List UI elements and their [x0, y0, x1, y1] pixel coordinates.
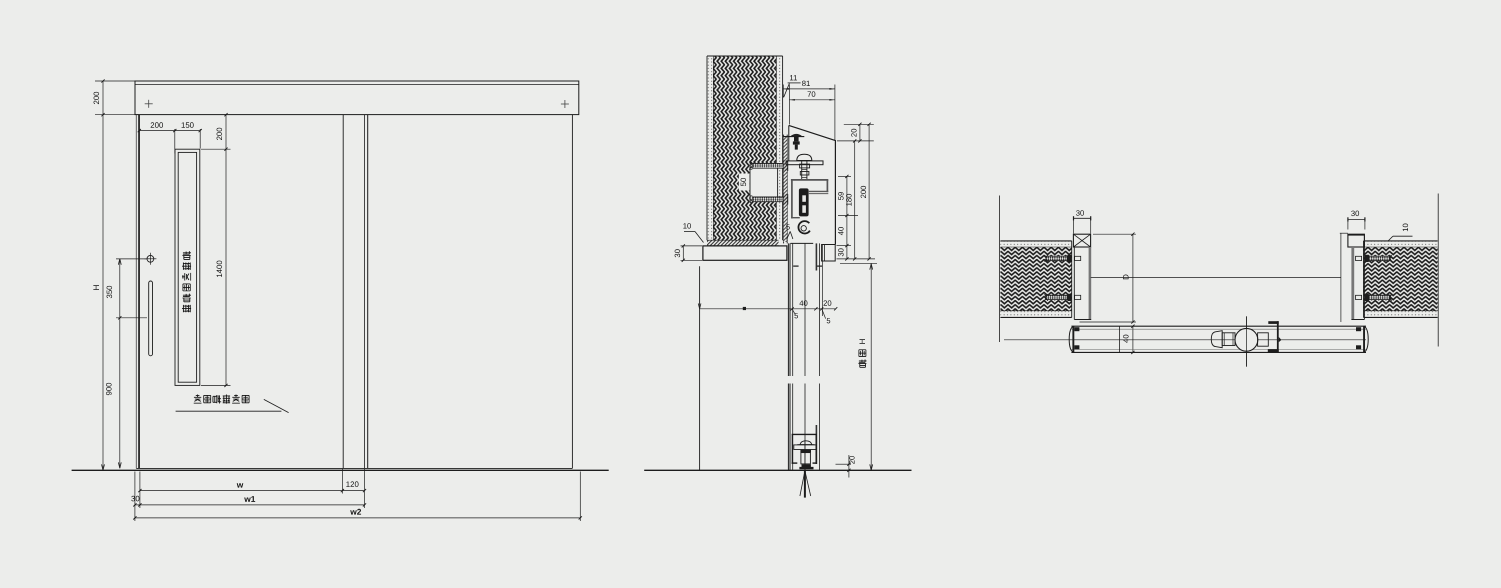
svg-text:180: 180 — [844, 194, 853, 207]
svg-text:w: w — [236, 480, 244, 490]
svg-text:D: D — [1122, 274, 1131, 280]
svg-text:5: 5 — [794, 311, 798, 320]
svg-text:10: 10 — [1401, 223, 1410, 232]
svg-text:H: H — [92, 284, 101, 290]
svg-text:H: H — [858, 338, 867, 344]
svg-text:200: 200 — [92, 91, 101, 105]
svg-text:81: 81 — [802, 79, 811, 88]
svg-text:200: 200 — [215, 127, 224, 141]
svg-text:40: 40 — [837, 227, 846, 236]
svg-text:30: 30 — [131, 494, 140, 503]
svg-text:w2: w2 — [349, 507, 362, 517]
svg-text:40: 40 — [799, 299, 808, 308]
svg-text:11: 11 — [789, 73, 797, 82]
svg-text:5: 5 — [826, 316, 830, 325]
svg-text:20: 20 — [850, 129, 859, 138]
svg-text:40: 40 — [1121, 334, 1130, 343]
svg-text:30: 30 — [1351, 209, 1360, 218]
svg-text:10: 10 — [683, 221, 692, 230]
svg-text:150: 150 — [181, 121, 195, 130]
svg-text:900: 900 — [105, 382, 114, 396]
svg-text:30: 30 — [1076, 209, 1085, 218]
svg-text:200: 200 — [150, 121, 164, 130]
svg-text:30: 30 — [673, 249, 682, 258]
svg-text:200: 200 — [859, 186, 868, 199]
svg-text:w1: w1 — [243, 494, 256, 504]
svg-text:120: 120 — [346, 480, 360, 489]
svg-text:70: 70 — [807, 90, 816, 99]
svg-text:5: 5 — [786, 222, 790, 231]
svg-text:50: 50 — [739, 177, 748, 186]
svg-text:20: 20 — [823, 299, 832, 308]
svg-text:1400: 1400 — [215, 260, 224, 278]
svg-text:30: 30 — [837, 248, 846, 257]
svg-text:350: 350 — [105, 285, 114, 299]
svg-text:20: 20 — [848, 456, 857, 464]
